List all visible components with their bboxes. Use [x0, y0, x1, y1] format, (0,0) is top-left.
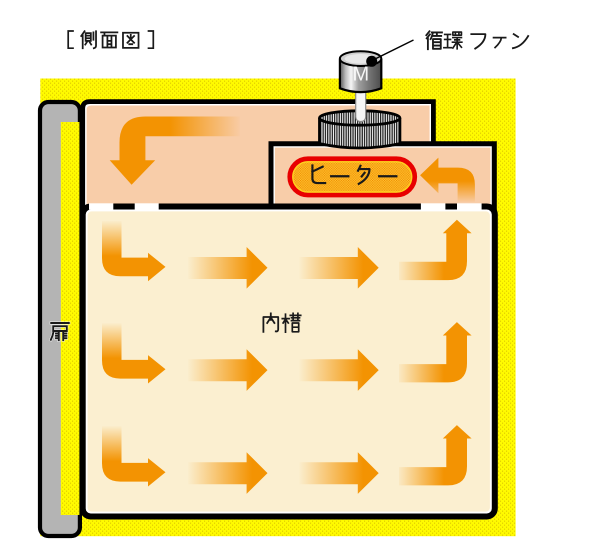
svg-text:M: M — [352, 64, 369, 86]
